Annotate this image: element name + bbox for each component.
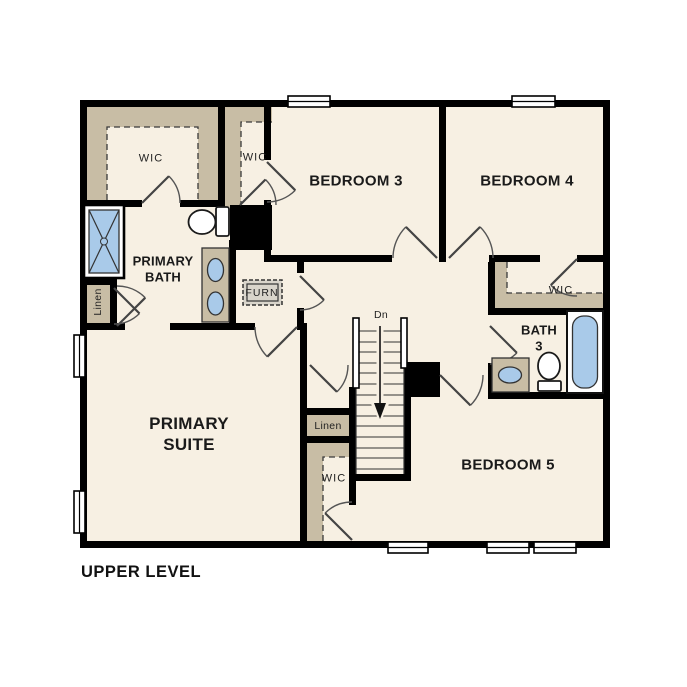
room-label-linen-bath: Linen bbox=[92, 288, 104, 315]
window bbox=[74, 335, 85, 377]
door-bedroom4-hall bbox=[449, 227, 493, 258]
room-label-linen-hall: Linen bbox=[314, 420, 341, 432]
window bbox=[388, 542, 428, 553]
room-label-bedroom5: BEDROOM 5 bbox=[461, 456, 555, 473]
door-furn-corridor bbox=[300, 276, 324, 310]
toilet-primary-icon bbox=[189, 207, 230, 236]
stair-rail-right bbox=[401, 318, 407, 368]
chase-block bbox=[230, 205, 272, 250]
room-label-bath3: BATH 3 bbox=[521, 322, 557, 353]
window bbox=[74, 491, 85, 533]
stairs-dn-label: Dn bbox=[374, 309, 388, 321]
window bbox=[534, 542, 576, 553]
bathtub-icon bbox=[567, 311, 603, 393]
primary-suite-line1: PRIMARY bbox=[149, 413, 229, 434]
window bbox=[288, 96, 330, 107]
toilet-bath3-icon bbox=[538, 353, 561, 392]
room-label-furn: FURN bbox=[245, 287, 278, 299]
floor-title: UPPER LEVEL bbox=[81, 563, 201, 582]
stairs-down-arrow bbox=[371, 326, 389, 423]
door-bedroom3-hall bbox=[393, 227, 437, 258]
door-linen-hall bbox=[310, 365, 348, 392]
window bbox=[512, 96, 555, 107]
door-bedroom5 bbox=[440, 375, 483, 405]
room-label-wic-hall: WIC bbox=[243, 152, 267, 165]
primary-bath-line2: BATH bbox=[133, 269, 194, 285]
stair-rail-left bbox=[353, 318, 359, 388]
bath3-line1: BATH bbox=[521, 322, 557, 338]
room-label-primary-bath: PRIMARY BATH bbox=[133, 253, 194, 284]
room-label-bedroom3: BEDROOM 3 bbox=[309, 172, 403, 189]
door-wic-bedroom5 bbox=[325, 502, 352, 540]
window bbox=[487, 542, 529, 553]
room-label-wic-bedroom5: WIC bbox=[322, 473, 346, 486]
primary-bath-line1: PRIMARY bbox=[133, 253, 194, 269]
door-primary-suite bbox=[255, 327, 297, 357]
bath3-line2: 3 bbox=[521, 338, 557, 354]
door-wic-primary bbox=[142, 176, 180, 203]
door-bedroom3-closetside bbox=[267, 162, 295, 202]
vanity-bath3-icon bbox=[492, 358, 529, 392]
floorplan-canvas bbox=[0, 0, 687, 687]
floorplan-page: WIC WIC BEDROOM 3 BEDROOM 4 PRIMARY BATH… bbox=[0, 0, 687, 687]
double-vanity-icon bbox=[202, 248, 229, 322]
room-label-wic-bedroom4: WIC bbox=[549, 285, 573, 298]
shower-icon bbox=[84, 205, 124, 278]
room-label-primary-suite: PRIMARY SUITE bbox=[149, 413, 229, 456]
stairs bbox=[353, 318, 407, 474]
primary-suite-line2: SUITE bbox=[149, 434, 229, 455]
room-label-wic-primary: WIC bbox=[139, 153, 163, 166]
stair-chase-block bbox=[407, 362, 440, 397]
room-label-bedroom4: BEDROOM 4 bbox=[480, 172, 574, 189]
